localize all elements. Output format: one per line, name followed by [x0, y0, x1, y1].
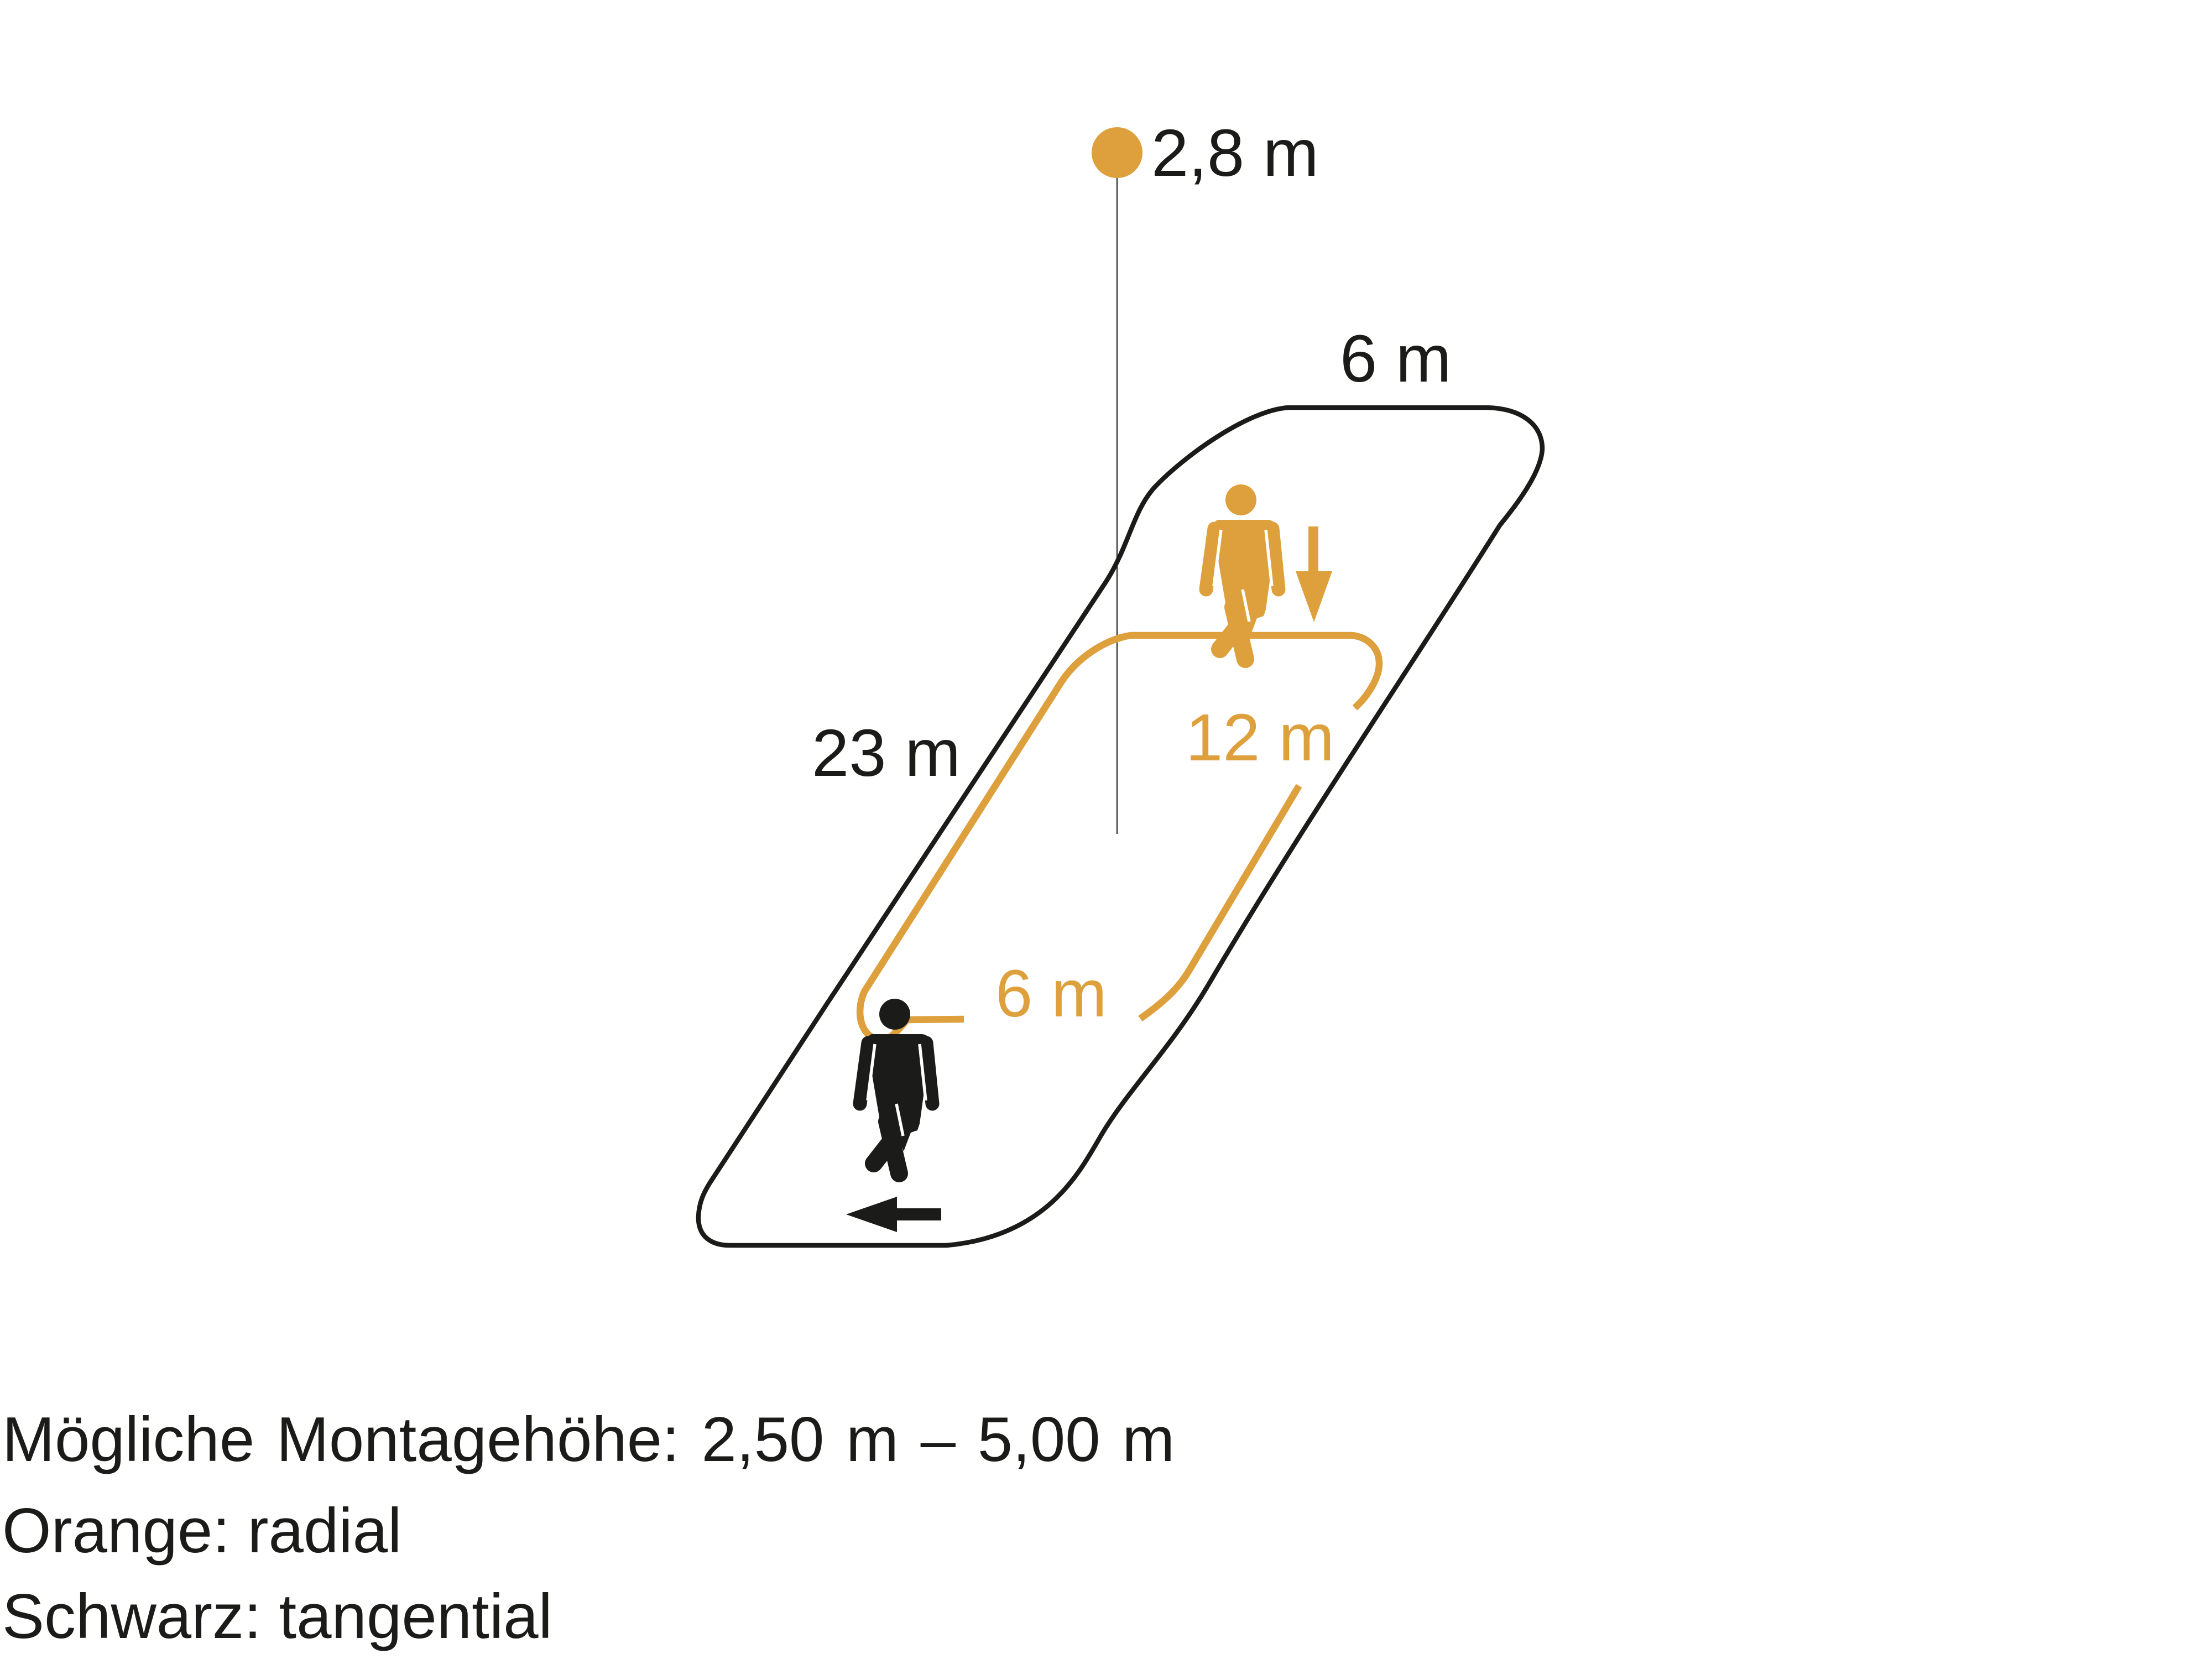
svg-text:6 m: 6 m: [1340, 321, 1452, 396]
svg-text:Orange: radial: Orange: radial: [2, 1496, 401, 1566]
svg-text:6 m: 6 m: [995, 956, 1107, 1031]
svg-text:12 m: 12 m: [1186, 700, 1334, 775]
svg-text:2,8 m: 2,8 m: [1151, 115, 1319, 190]
svg-text:Schwarz: tangential: Schwarz: tangential: [2, 1582, 552, 1652]
svg-text:23 m: 23 m: [812, 715, 961, 790]
svg-text:Mögliche Montagehöhe: 2,50 m –: Mögliche Montagehöhe: 2,50 m – 5,00 m: [2, 1405, 1175, 1475]
